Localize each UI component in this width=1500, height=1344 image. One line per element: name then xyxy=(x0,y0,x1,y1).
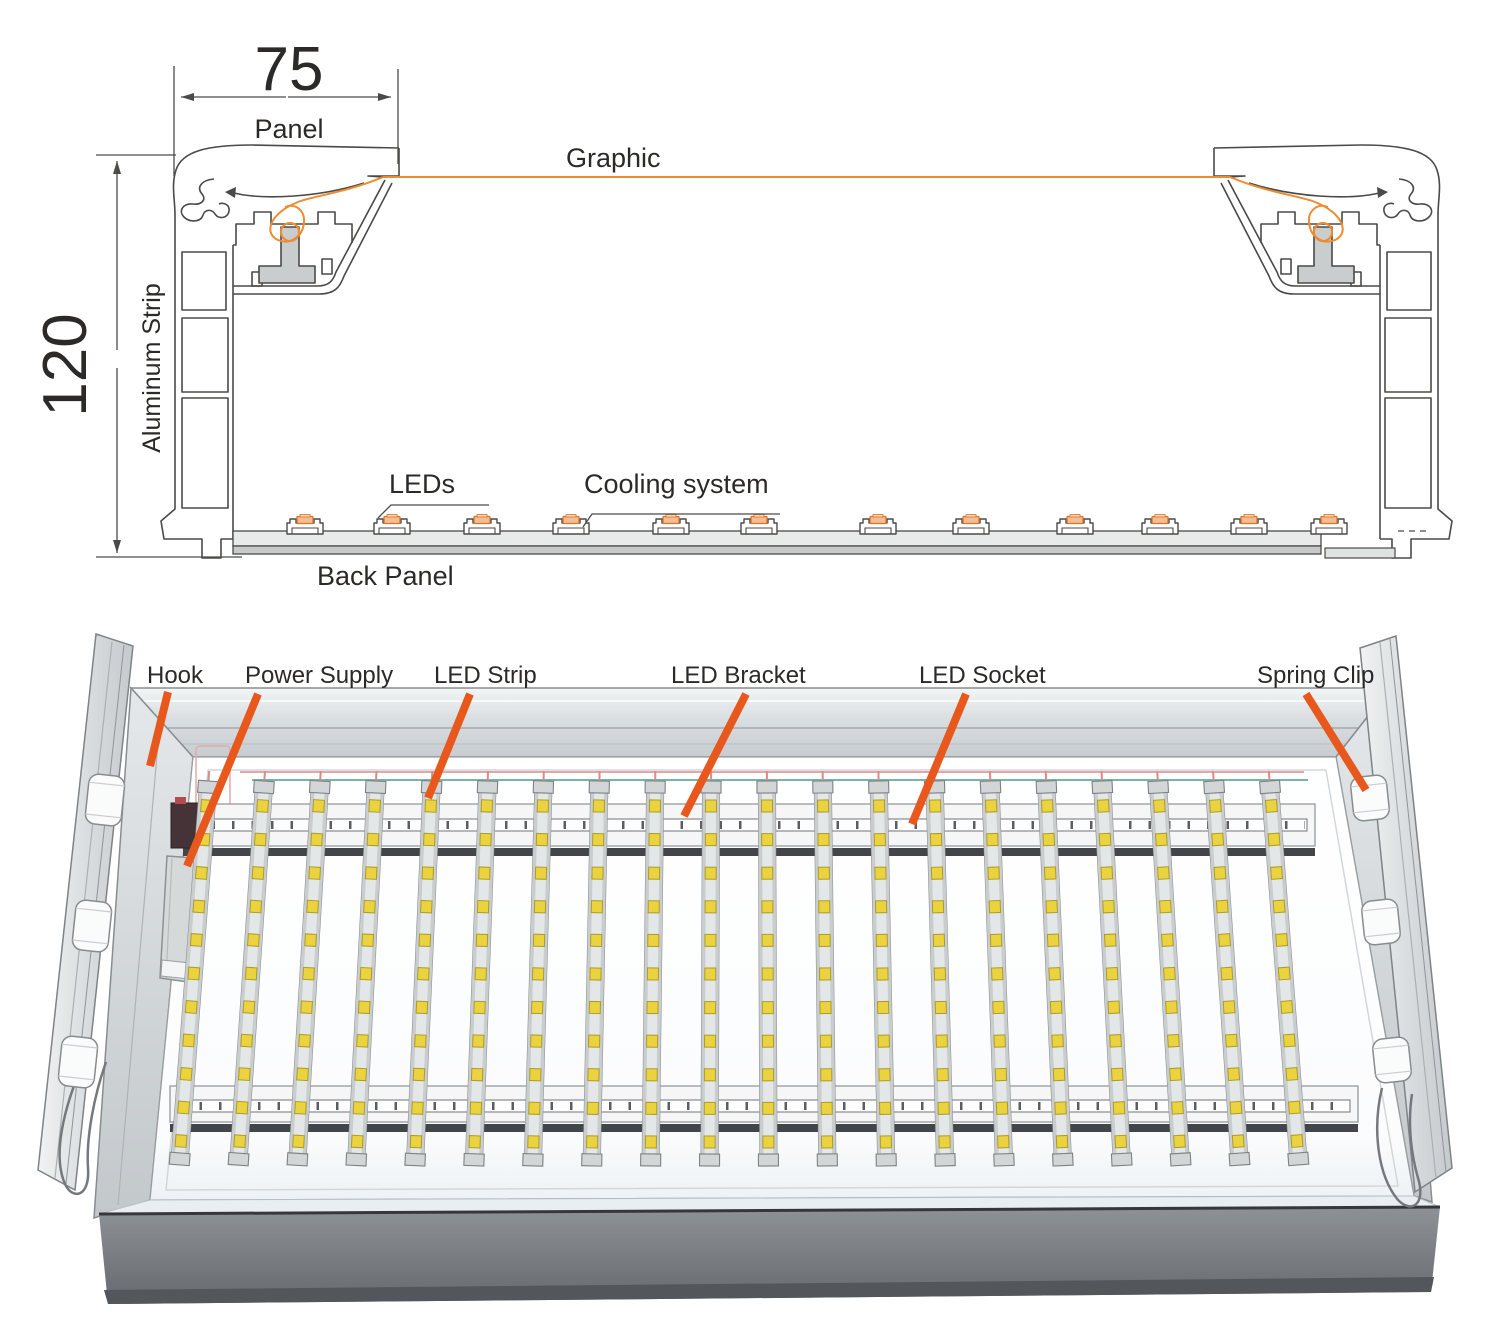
led xyxy=(647,1002,658,1014)
led xyxy=(473,1035,484,1047)
led xyxy=(762,1035,773,1047)
led xyxy=(1052,1035,1064,1047)
led xyxy=(480,833,491,845)
led xyxy=(936,1035,947,1047)
led-chip xyxy=(384,517,400,524)
cross-section-diagram: 75 Panel 120 Aluminum Strip Graphic LEDs… xyxy=(0,0,1500,610)
led xyxy=(705,800,716,812)
led xyxy=(532,1001,543,1013)
led xyxy=(1106,967,1118,980)
led xyxy=(648,901,659,913)
led xyxy=(762,968,773,980)
led xyxy=(1154,800,1166,813)
led-chip xyxy=(1067,517,1083,524)
led xyxy=(254,833,266,846)
led xyxy=(1103,900,1115,913)
back-panel xyxy=(233,531,1430,558)
led xyxy=(878,1001,889,1013)
led xyxy=(593,833,604,845)
led xyxy=(1210,800,1222,813)
led xyxy=(1108,1001,1120,1014)
led xyxy=(1223,1001,1235,1014)
led xyxy=(646,1102,657,1114)
led xyxy=(425,800,437,812)
led-chip xyxy=(963,517,979,524)
led xyxy=(996,1102,1007,1114)
led xyxy=(1097,800,1109,813)
led xyxy=(820,968,831,980)
led xyxy=(535,867,546,879)
led xyxy=(1266,800,1278,813)
led xyxy=(1043,833,1055,845)
led-chip xyxy=(1321,517,1337,524)
dimension-width-value: 75 xyxy=(255,35,324,104)
led xyxy=(528,1136,539,1148)
led xyxy=(419,934,431,946)
led xyxy=(474,1001,485,1013)
callout-label-power-supply: Power Supply xyxy=(245,662,393,689)
led xyxy=(421,900,433,912)
led xyxy=(1049,968,1061,980)
led xyxy=(1164,967,1176,980)
graphic-label: Graphic xyxy=(566,143,661,173)
led xyxy=(1158,867,1170,880)
led xyxy=(704,1102,715,1114)
led xyxy=(178,1101,190,1114)
led xyxy=(985,800,996,812)
led xyxy=(360,967,372,980)
callout-label-led-strip: LED Strip xyxy=(434,662,537,689)
led-module xyxy=(464,515,500,535)
led xyxy=(1174,1135,1186,1148)
led xyxy=(193,900,205,913)
led-module xyxy=(287,515,323,535)
led xyxy=(929,800,940,812)
led xyxy=(1111,1068,1123,1081)
led-module xyxy=(553,515,589,535)
led xyxy=(1232,1135,1244,1148)
led xyxy=(1050,1001,1062,1013)
led xyxy=(234,1135,246,1148)
led xyxy=(412,1102,424,1114)
led xyxy=(649,834,660,846)
led xyxy=(355,1068,367,1081)
led xyxy=(763,1102,774,1114)
led xyxy=(822,1136,833,1148)
callout-label-led-bracket: LED Bracket xyxy=(671,662,806,689)
led xyxy=(1104,934,1116,947)
led xyxy=(994,1035,1005,1047)
led xyxy=(649,867,660,879)
led xyxy=(416,1001,428,1013)
led-module xyxy=(1231,515,1267,535)
led xyxy=(1166,1001,1178,1014)
led xyxy=(593,800,604,812)
led-module xyxy=(860,515,896,535)
led xyxy=(821,1069,832,1081)
led xyxy=(934,968,945,980)
led xyxy=(418,968,430,980)
led xyxy=(185,1001,197,1014)
led xyxy=(590,968,601,980)
led xyxy=(1214,867,1226,880)
led xyxy=(591,901,602,913)
led xyxy=(1113,1102,1125,1115)
led xyxy=(992,968,1003,980)
spring-clip xyxy=(1350,774,1390,822)
back-panel-label: Back Panel xyxy=(317,561,454,591)
led xyxy=(532,968,543,980)
led xyxy=(876,901,887,913)
led xyxy=(817,800,828,812)
led xyxy=(935,1001,946,1013)
led xyxy=(1291,1135,1303,1148)
hook xyxy=(71,899,112,952)
led-module xyxy=(1142,515,1178,535)
dimension-height-value: 120 xyxy=(31,313,100,416)
panel-label: Panel xyxy=(254,114,323,144)
led xyxy=(358,1001,370,1014)
led xyxy=(705,901,716,913)
led xyxy=(1156,833,1168,846)
spring-clip xyxy=(1361,898,1401,946)
led xyxy=(763,1136,774,1148)
led xyxy=(1288,1101,1300,1114)
led-strip xyxy=(700,771,722,1166)
led xyxy=(818,834,829,846)
led xyxy=(762,834,773,846)
led xyxy=(938,1102,949,1114)
led xyxy=(762,1002,773,1014)
led xyxy=(351,1135,363,1148)
led xyxy=(1225,1034,1237,1047)
led xyxy=(705,934,716,946)
led xyxy=(647,968,658,980)
led-chip xyxy=(663,517,679,524)
led xyxy=(1278,967,1290,980)
led xyxy=(1170,1068,1182,1081)
led xyxy=(257,800,269,813)
hook xyxy=(84,773,125,826)
led xyxy=(293,1135,305,1148)
led xyxy=(987,833,998,845)
led xyxy=(705,867,716,879)
lightbox-structure-diagram: 75 Panel 120 Aluminum Strip Graphic LEDs… xyxy=(0,0,1500,1344)
box-top-wall xyxy=(131,688,1390,757)
led xyxy=(592,867,603,879)
callout-label-spring-clip: Spring Clip xyxy=(1257,662,1374,689)
led xyxy=(415,1035,427,1047)
led xyxy=(479,867,490,879)
aluminum-profile-section xyxy=(161,145,399,558)
led xyxy=(534,901,545,913)
led xyxy=(369,800,381,813)
led xyxy=(705,968,716,980)
led xyxy=(188,967,200,980)
led xyxy=(175,1135,187,1148)
led xyxy=(1216,900,1228,913)
led xyxy=(410,1135,422,1147)
callout-label-led-socket: LED Socket xyxy=(919,662,1046,689)
led xyxy=(531,1035,542,1047)
led xyxy=(307,900,319,913)
led-strip xyxy=(757,771,779,1166)
led xyxy=(995,1068,1006,1080)
led xyxy=(587,1136,598,1148)
led-chip xyxy=(1152,517,1168,524)
led-module xyxy=(953,515,989,535)
led-chip xyxy=(870,517,886,524)
led xyxy=(1219,934,1231,947)
spring-clip xyxy=(1372,1036,1412,1084)
led xyxy=(481,800,492,812)
led xyxy=(990,934,1001,946)
led xyxy=(299,1034,311,1047)
led xyxy=(988,867,999,879)
led xyxy=(476,934,487,946)
led xyxy=(303,967,315,980)
aluminum-profile-section-right xyxy=(1214,145,1452,558)
led-module xyxy=(1311,515,1347,535)
led xyxy=(241,1034,253,1047)
led-chip xyxy=(563,517,579,524)
led xyxy=(357,1035,369,1048)
led xyxy=(820,1002,831,1014)
led xyxy=(297,1068,309,1081)
led xyxy=(1172,1102,1184,1115)
led xyxy=(477,901,488,913)
led xyxy=(762,867,773,879)
led xyxy=(930,833,941,845)
led-chip xyxy=(1241,517,1257,524)
led xyxy=(533,934,544,946)
led xyxy=(536,833,547,845)
led xyxy=(1230,1101,1242,1114)
led xyxy=(309,867,321,880)
led xyxy=(1281,1001,1293,1014)
led xyxy=(1056,1135,1068,1147)
led xyxy=(422,867,434,879)
led xyxy=(1115,1135,1127,1148)
led-chip xyxy=(474,517,490,524)
led xyxy=(589,1001,600,1013)
led xyxy=(236,1101,248,1114)
led xyxy=(353,1102,365,1115)
leds-label: LEDs xyxy=(389,469,455,499)
led xyxy=(880,1136,891,1148)
led xyxy=(1053,1068,1065,1080)
led xyxy=(1276,934,1288,947)
led xyxy=(413,1068,425,1080)
led xyxy=(365,867,377,880)
led xyxy=(1110,1035,1122,1048)
led xyxy=(1283,1034,1295,1047)
led-module xyxy=(1057,515,1093,535)
led xyxy=(1162,934,1174,947)
led xyxy=(1228,1068,1240,1081)
led xyxy=(931,867,942,879)
led xyxy=(647,1035,658,1047)
led xyxy=(424,833,436,845)
led xyxy=(761,800,772,812)
led xyxy=(762,901,773,913)
led xyxy=(190,934,202,947)
led xyxy=(933,934,944,946)
led xyxy=(645,1136,656,1148)
led xyxy=(704,1069,715,1081)
led xyxy=(529,1102,540,1114)
led xyxy=(305,934,317,947)
led xyxy=(939,1136,950,1148)
led xyxy=(530,1069,541,1081)
led xyxy=(248,934,260,947)
led xyxy=(367,833,379,846)
led-module xyxy=(741,515,777,535)
led xyxy=(469,1136,480,1148)
led xyxy=(180,1068,192,1081)
led xyxy=(818,867,829,879)
led xyxy=(704,1136,715,1148)
led xyxy=(250,900,262,913)
led xyxy=(1268,833,1280,846)
callout-label-hook: Hook xyxy=(147,662,204,689)
led xyxy=(311,833,323,846)
led xyxy=(313,800,325,813)
led xyxy=(196,867,208,880)
led-chip xyxy=(297,517,313,524)
led xyxy=(705,1035,716,1047)
led xyxy=(649,800,660,812)
led xyxy=(646,1069,657,1081)
lightbox-open-back-illustration: HookPower SupplyLED StripLED BracketLED … xyxy=(0,620,1500,1344)
led xyxy=(475,968,486,980)
led xyxy=(880,1102,891,1114)
led xyxy=(1044,867,1056,879)
led xyxy=(874,833,885,845)
led xyxy=(821,1102,832,1114)
led xyxy=(588,1069,599,1081)
led xyxy=(937,1069,948,1081)
led xyxy=(819,901,830,913)
led xyxy=(537,800,548,812)
led xyxy=(1047,934,1059,946)
led xyxy=(1221,967,1233,980)
led xyxy=(879,1069,890,1081)
led xyxy=(1168,1034,1180,1047)
led xyxy=(763,1069,774,1081)
led xyxy=(1101,867,1113,880)
led xyxy=(1055,1102,1067,1114)
led xyxy=(252,867,264,880)
led xyxy=(989,901,1000,913)
led xyxy=(876,934,887,946)
led xyxy=(295,1102,307,1115)
led xyxy=(648,934,659,946)
led xyxy=(589,1035,600,1047)
led xyxy=(471,1068,482,1080)
led-chip xyxy=(751,517,767,524)
led xyxy=(1271,867,1283,880)
aluminum-strip-label: Aluminum Strip xyxy=(138,283,166,453)
led xyxy=(1286,1068,1298,1081)
led xyxy=(1160,900,1172,913)
led xyxy=(1212,833,1224,846)
led xyxy=(873,800,884,812)
led xyxy=(591,934,602,946)
led xyxy=(875,867,886,879)
led xyxy=(1041,800,1053,812)
led xyxy=(183,1034,195,1047)
led xyxy=(819,934,830,946)
led xyxy=(705,1002,716,1014)
led xyxy=(364,900,376,913)
led xyxy=(1046,900,1058,912)
led xyxy=(820,1035,831,1047)
led xyxy=(1099,833,1111,846)
led xyxy=(362,934,374,947)
led xyxy=(243,1001,255,1014)
led xyxy=(932,901,943,913)
led xyxy=(1273,900,1285,913)
led xyxy=(238,1068,250,1081)
led-module xyxy=(653,515,689,535)
led xyxy=(762,934,773,946)
led xyxy=(998,1136,1009,1148)
led xyxy=(877,968,888,980)
led xyxy=(301,1001,313,1014)
led xyxy=(470,1102,481,1114)
led xyxy=(705,834,716,846)
hook xyxy=(57,1035,98,1088)
cooling-system-label: Cooling system xyxy=(584,469,769,499)
led xyxy=(245,967,257,980)
led xyxy=(993,1001,1004,1013)
led xyxy=(878,1035,889,1047)
led xyxy=(587,1102,598,1114)
